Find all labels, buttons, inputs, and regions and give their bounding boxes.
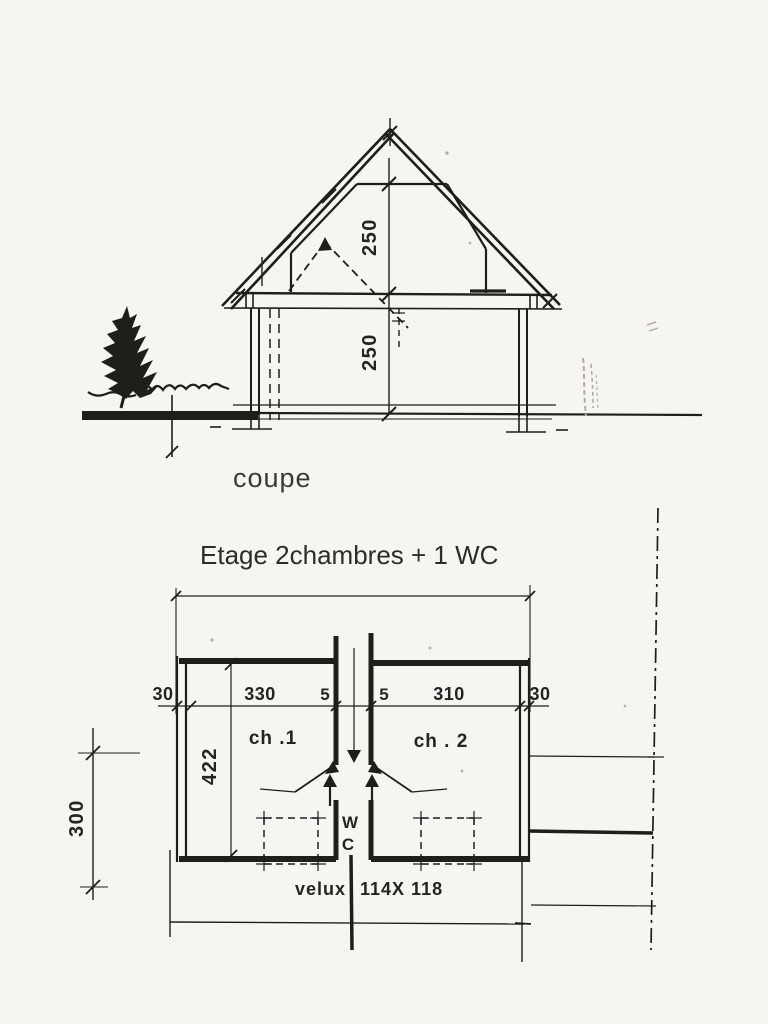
plan-dimension-depth — [225, 658, 237, 862]
wc-label-w: W — [342, 813, 359, 832]
dim-right-wall: 30 — [529, 684, 550, 704]
section-drawing: 250 250 — [82, 118, 702, 773]
section-caption: coupe — [233, 463, 312, 493]
plan-title: Etage 2chambres + 1 WC — [200, 540, 498, 570]
stair-arrows — [260, 648, 447, 806]
tree-icon — [88, 306, 229, 408]
center-line — [651, 508, 658, 950]
velux-label-size: 114X 118 — [360, 879, 443, 899]
velux-label-word: velux — [295, 879, 346, 899]
blueprint-scan: 250 250 — [0, 0, 768, 1024]
room-label-ch2: ch . 2 — [414, 731, 469, 752]
dim-partition-left: 5 — [320, 685, 329, 704]
attic-dashed-lines — [289, 237, 408, 328]
dim-room1-width: 330 — [244, 684, 276, 704]
plan-dimension-overall — [171, 585, 535, 714]
section-dim-attic: 250 — [359, 218, 381, 256]
scan-noise — [210, 151, 658, 772]
dim-left-wall: 30 — [152, 684, 173, 704]
roof-outline — [222, 129, 560, 309]
section-cut-line — [351, 855, 352, 950]
annex-lines — [529, 756, 664, 906]
floor-plan: Etage 2chambres + 1 WC — [66, 508, 664, 962]
dim-depth-label: 422 — [199, 747, 221, 785]
dim-room2-width: 310 — [433, 684, 465, 704]
foundations — [210, 415, 568, 432]
room-label-ch1: ch .1 — [249, 728, 297, 749]
entry-arrow-left-icon — [323, 774, 337, 787]
dim-left-label: 300 — [66, 799, 88, 837]
arrow-head-icon — [318, 237, 332, 251]
section-dim-floor: 250 — [359, 333, 381, 371]
wc-label-c: C — [342, 835, 354, 854]
ground-line — [82, 395, 702, 458]
dim-partition-right: 5 — [379, 685, 388, 704]
stair-down-arrow-icon — [347, 750, 361, 763]
attic-floor-lines — [224, 289, 562, 309]
section-dimension-line — [382, 118, 405, 421]
entry-arrow-right-icon — [365, 774, 379, 787]
